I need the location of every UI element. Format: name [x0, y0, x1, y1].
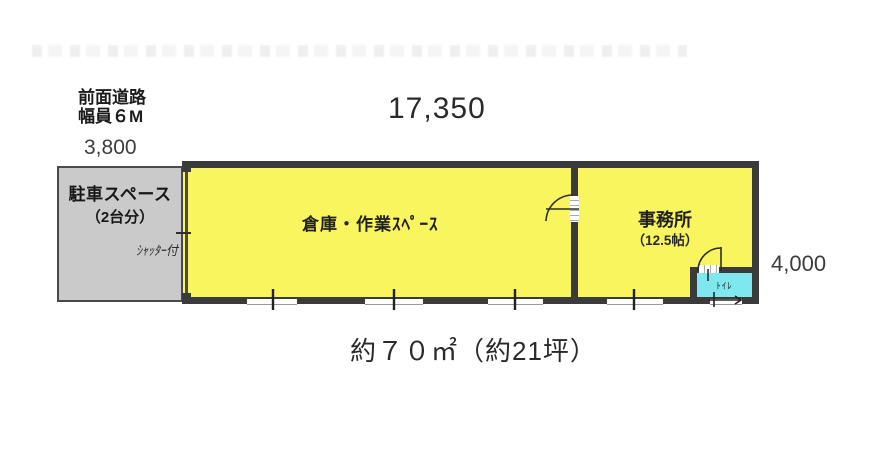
wall-top [182, 161, 759, 168]
office-window [607, 299, 663, 305]
office-size-label: （12.5帖） [578, 229, 752, 249]
wall-corner-bottom-left [182, 293, 191, 304]
parking-sublabel: （2台分） [59, 206, 181, 227]
dimension-parking-width: 3,800 [84, 136, 137, 160]
front-road-line2: 幅員６M [78, 107, 146, 126]
warehouse-window-3 [488, 299, 543, 305]
toilet-door-opening [699, 265, 719, 273]
warehouse-label: 倉庫・作業ｽﾍﾟｰｽ [302, 210, 439, 235]
wall-corner-top-left [182, 161, 191, 172]
shutter-note: ｼｬｯﾀｰ付 [136, 240, 178, 259]
wall-office-divider [571, 161, 578, 304]
warehouse-window-2 [365, 299, 423, 305]
toilet-label: ﾄｲﾚ [716, 279, 733, 292]
total-area-label: 約７０㎡（約21坪） [350, 331, 597, 368]
dimension-building-depth: 4,000 [771, 251, 826, 277]
toilet-wall-left [690, 267, 697, 297]
floor-plan-canvas: 前面道路 幅員６M 3,800 17,350 4,000 駐車スペース （2台分… [0, 0, 894, 467]
wall-left-shutter [185, 161, 188, 304]
front-road-note: 前面道路 幅員６M [78, 88, 146, 126]
wall-right [752, 161, 759, 304]
toilet-window [710, 299, 742, 305]
warehouse-window-1 [247, 299, 297, 305]
faint-cropped-text-artifact [32, 45, 687, 57]
dimension-building-width: 17,350 [388, 92, 486, 126]
front-road-line1: 前面道路 [78, 88, 146, 107]
parking-space-area: 駐車スペース （2台分） [57, 166, 183, 302]
parking-label: 駐車スペース [59, 180, 181, 205]
toilet-room: ﾄｲﾚ [697, 273, 752, 297]
